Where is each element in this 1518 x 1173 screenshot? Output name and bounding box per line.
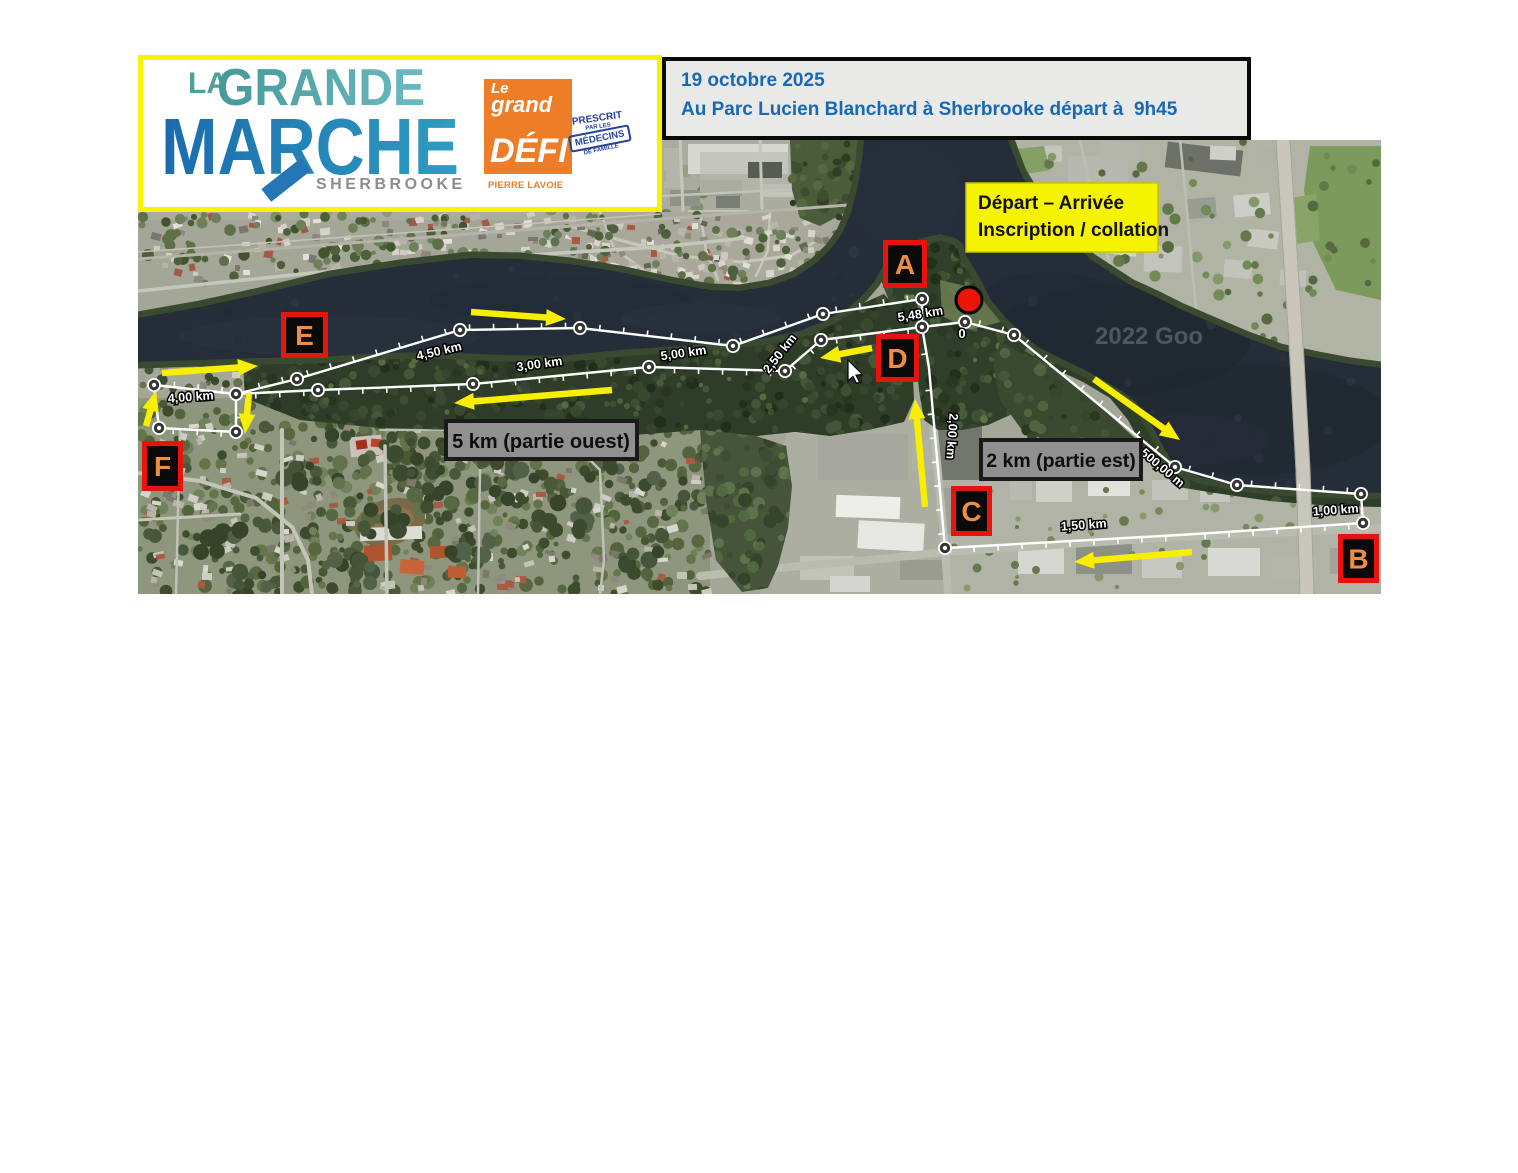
svg-text:5 km (partie ouest): 5 km (partie ouest)	[452, 431, 630, 453]
svg-text:GRANDE: GRANDE	[217, 61, 425, 111]
svg-text:0: 0	[958, 326, 965, 341]
svg-text:D: D	[887, 343, 907, 374]
svg-text:Départ – Arrivée: Départ – Arrivée	[978, 193, 1124, 214]
svg-text:A: A	[895, 249, 915, 280]
svg-text:C: C	[961, 496, 981, 527]
svg-text:Inscription / collation: Inscription / collation	[978, 220, 1169, 241]
svg-text:F: F	[154, 451, 171, 482]
svg-text:2 km (partie est): 2 km (partie est)	[986, 450, 1136, 472]
svg-text:MARCHE: MARCHE	[163, 108, 459, 178]
svg-text:2022 Goo: 2022 Goo	[1095, 323, 1203, 350]
svg-text:B: B	[1348, 544, 1368, 575]
svg-text:E: E	[295, 320, 314, 351]
